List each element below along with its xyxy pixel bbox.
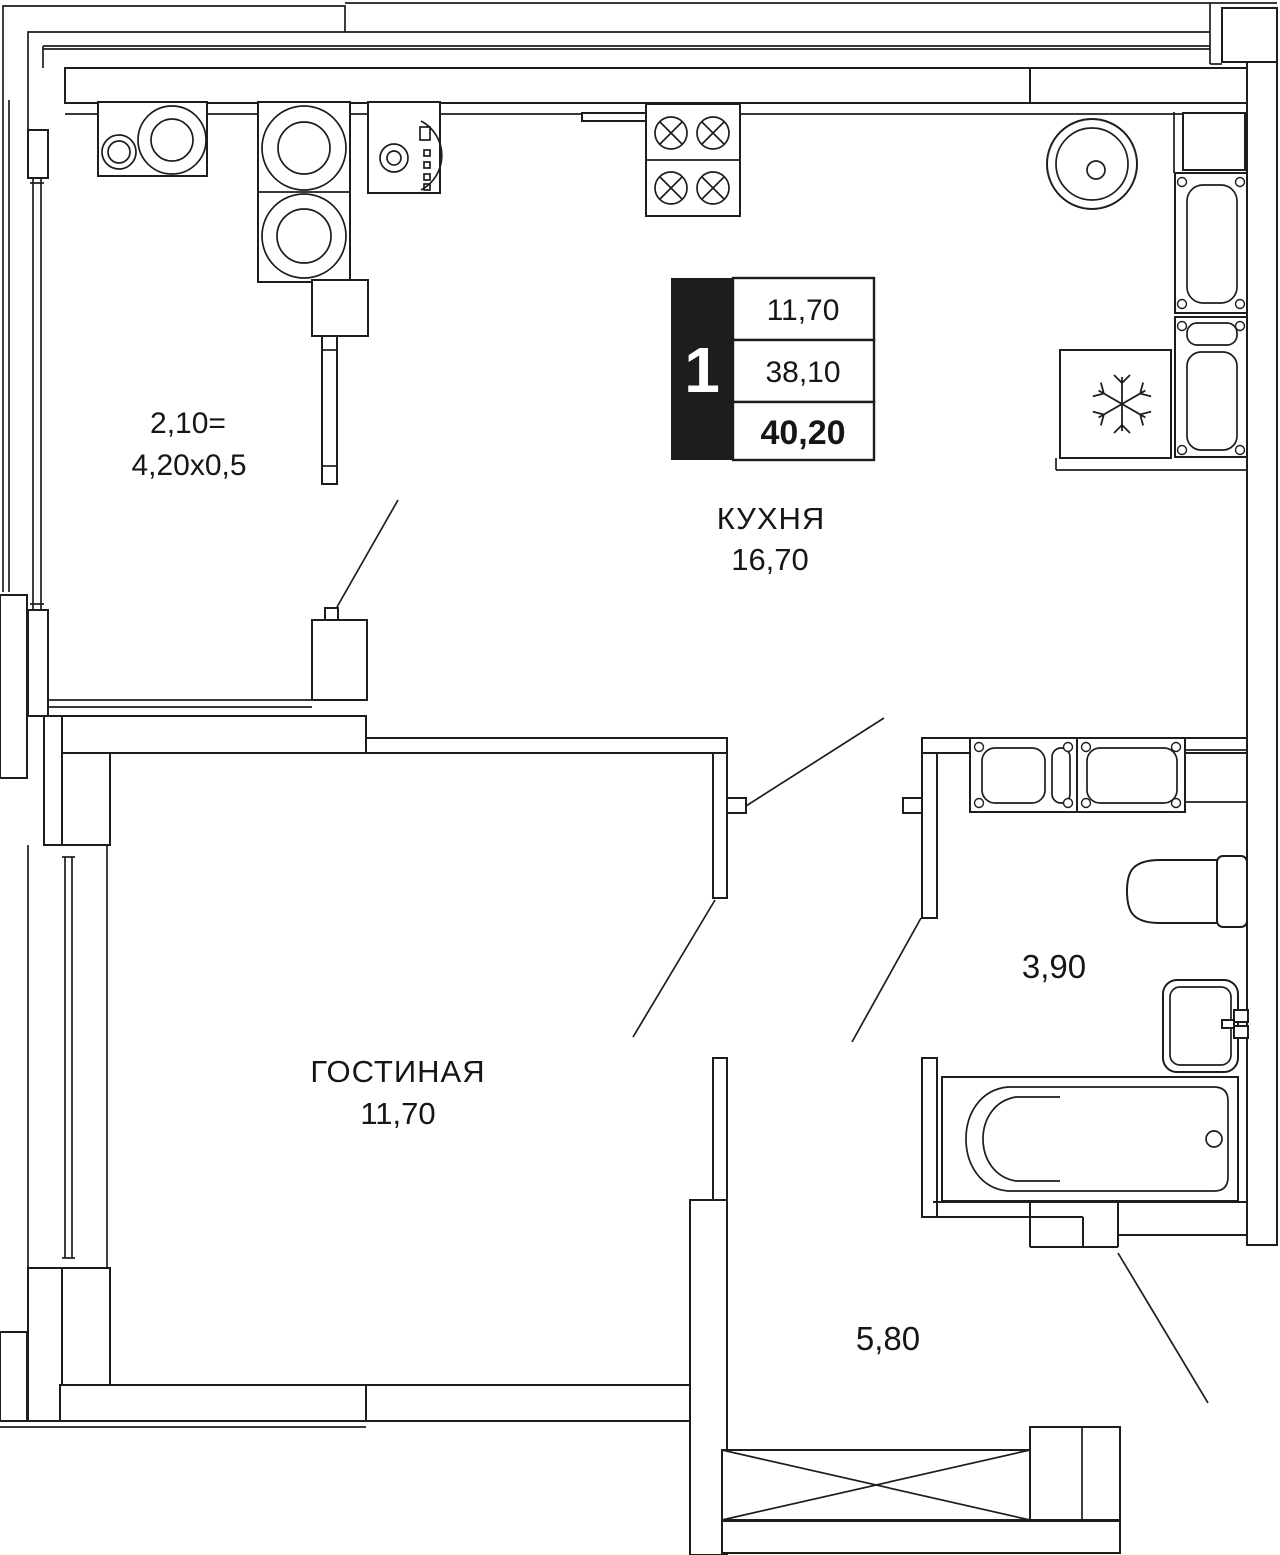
kitchen-label: КУХНЯ bbox=[717, 501, 826, 536]
floor-plan-drawing: 1 11,70 38,10 40,20 2,10= 4,20x0,5 КУХНЯ… bbox=[0, 0, 1280, 1555]
bathtub bbox=[942, 1077, 1238, 1201]
faucet-icon bbox=[1222, 1020, 1234, 1028]
living-bottom-wall bbox=[60, 1385, 366, 1421]
floor-plan: 1 11,70 38,10 40,20 2,10= 4,20x0,5 КУХНЯ… bbox=[0, 0, 1280, 1555]
facade-pier bbox=[0, 1332, 27, 1421]
toilet bbox=[1127, 856, 1247, 927]
door-jamb bbox=[903, 798, 922, 813]
refrigerator bbox=[1060, 350, 1171, 458]
laundry-unit-right bbox=[1077, 738, 1185, 812]
partition-strip bbox=[922, 1058, 937, 1217]
top-exterior-wall bbox=[65, 68, 1030, 103]
legend-total: 40,20 bbox=[760, 414, 845, 452]
bathroom-left-wall bbox=[922, 753, 937, 918]
laundry-unit-left bbox=[970, 738, 1077, 812]
facade-pier bbox=[0, 595, 27, 778]
legend-row2: 38,10 bbox=[765, 356, 840, 389]
counter-board bbox=[582, 113, 654, 121]
partition-strip bbox=[713, 1058, 727, 1200]
balcony-divider-wall bbox=[44, 716, 366, 753]
room-labels: 2,10= 4,20x0,5 КУХНЯ 16,70 ГОСТИНАЯ 11,7… bbox=[131, 407, 1086, 1357]
legend-row1: 11,70 bbox=[767, 294, 840, 327]
living-area: 11,70 bbox=[360, 1096, 435, 1131]
kitchen-area: 16,70 bbox=[731, 542, 809, 577]
washbasin bbox=[1163, 980, 1248, 1072]
hallway-area: 5,80 bbox=[856, 1320, 920, 1357]
legend: 1 11,70 38,10 40,20 bbox=[671, 278, 874, 460]
opening-line bbox=[633, 900, 715, 1037]
living-bottom-wall-plain bbox=[366, 1385, 690, 1421]
partition-strip bbox=[713, 753, 727, 898]
door-swing-line bbox=[337, 500, 398, 607]
crossed-wardrobe bbox=[722, 1450, 1030, 1520]
four-burner-stove bbox=[646, 104, 740, 216]
radiator-panel-upper bbox=[1175, 173, 1247, 313]
living-top-wall bbox=[366, 738, 727, 753]
tall-cabinet bbox=[1183, 113, 1245, 170]
bathroom-door-swing bbox=[852, 918, 921, 1042]
door-hinge bbox=[325, 608, 338, 620]
two-ring-cooktop bbox=[258, 102, 368, 336]
right-exterior-wall bbox=[1247, 62, 1277, 1245]
living-room-window-wall bbox=[0, 845, 110, 1421]
washing-machine bbox=[368, 102, 442, 193]
double-bowl-sink bbox=[98, 102, 207, 176]
bottom-wall bbox=[722, 1521, 1120, 1553]
legend-rooms-count: 1 bbox=[684, 334, 720, 406]
door-pier bbox=[312, 620, 367, 700]
round-sink bbox=[1047, 119, 1137, 209]
bathroom-area: 3,90 bbox=[1022, 948, 1086, 985]
balcony-area-line1: 2,10= bbox=[150, 407, 226, 440]
door-jamb bbox=[727, 798, 746, 813]
entry-door-swing bbox=[1118, 1253, 1208, 1403]
radiator-panel-lower bbox=[1175, 317, 1247, 457]
corner-column bbox=[1222, 8, 1277, 62]
balcony-area-line2: 4,20x0,5 bbox=[131, 449, 246, 482]
kitchen-door-swing bbox=[746, 718, 884, 806]
entry-pier bbox=[1030, 1427, 1120, 1520]
balcony-door bbox=[312, 336, 398, 700]
top-exterior-wall-pylon bbox=[1030, 68, 1250, 103]
living-label: ГОСТИНАЯ bbox=[310, 1054, 485, 1089]
vestibule-lines bbox=[933, 1202, 1247, 1247]
